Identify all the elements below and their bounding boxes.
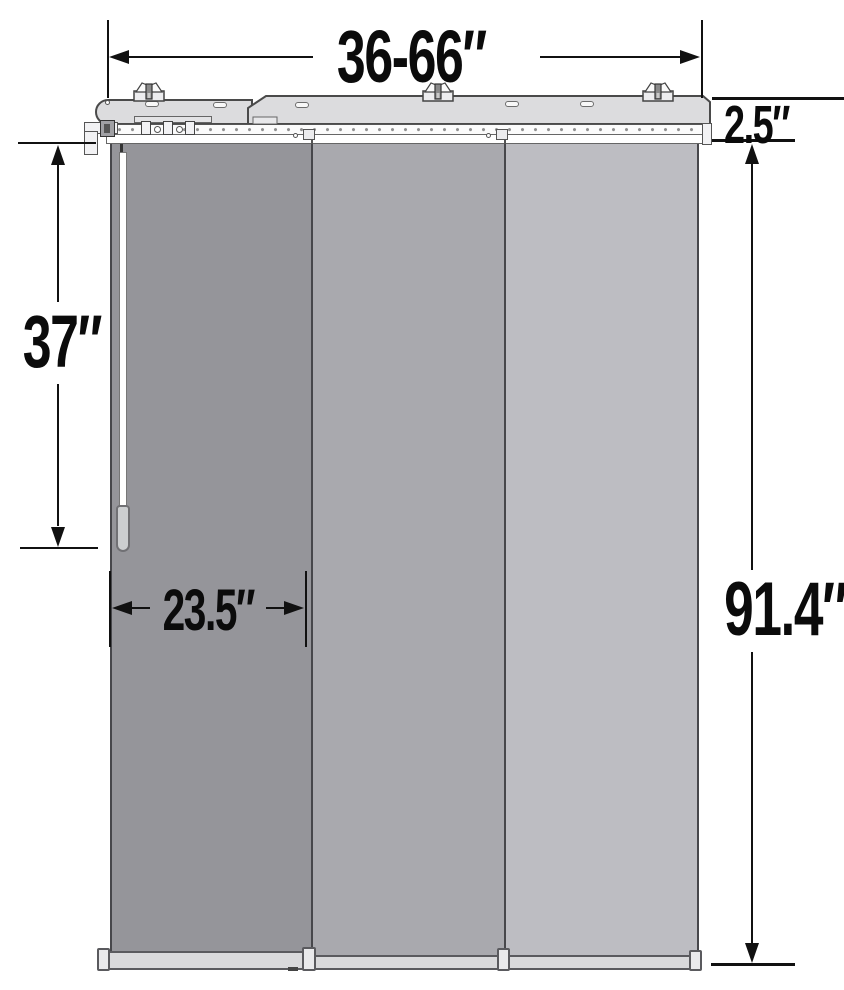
width-range-value: 36-66″ [337, 20, 486, 94]
extension-line-right [701, 20, 703, 98]
cord-anchor-detail [104, 124, 110, 133]
wand-length-value: 37″ [23, 305, 101, 379]
track-screw [293, 133, 298, 138]
panel-1 [110, 139, 313, 956]
arrowhead-down [745, 943, 759, 963]
wand-shaft [119, 152, 127, 507]
carrier-wheel [176, 126, 183, 133]
panel-2 [311, 140, 506, 958]
overall-height-label: 91.4″ [698, 572, 842, 648]
panel-3 [504, 140, 699, 958]
wand-tick-top [18, 142, 96, 144]
bottom-rail-stop [288, 967, 298, 971]
carrier-body [141, 121, 151, 135]
arrowhead-down [51, 527, 65, 547]
bottom-rail-panel-1 [99, 951, 313, 970]
headrail-slot [213, 102, 227, 108]
mounting-bracket-right [641, 79, 675, 103]
arrowhead-right [680, 50, 700, 64]
arrowhead-left [109, 50, 129, 64]
headrail-slot [580, 101, 594, 107]
arrowhead-right [284, 601, 304, 615]
panel-blind-dimension-diagram: 36-66″ 2.5″ 91.4″ 37″ 23.5″ [0, 0, 844, 990]
headrail-slot [505, 101, 519, 107]
track-lower-channel [106, 134, 712, 144]
panel-width-tick-right [305, 571, 307, 647]
wand-tick-bottom [20, 547, 98, 549]
bottom-rail-endcap [302, 947, 316, 971]
panel-hanger-clip [303, 129, 315, 140]
bottom-rail-panel-3 [504, 955, 700, 970]
panel-width-label: 23.5″ [128, 582, 288, 640]
overall-height-value: 91.4″ [724, 572, 844, 648]
dimension-line [266, 607, 286, 609]
headrail-slot [295, 102, 309, 108]
bottom-rail-endcap [689, 950, 702, 971]
mounting-bracket-left [132, 79, 166, 103]
carrier-body [185, 121, 195, 135]
panel-width-value: 23.5″ [162, 582, 253, 640]
bottom-rail-endcap [97, 948, 110, 971]
wand-handle [116, 505, 130, 552]
carrier-body [163, 121, 173, 135]
dimension-line [57, 384, 59, 526]
arrowhead-up [51, 145, 65, 165]
wand-length-label: 37″ [6, 305, 116, 379]
width-range-label: 36-66″ [286, 20, 536, 94]
dimension-line [540, 56, 680, 58]
panel-hanger-clip [496, 129, 508, 140]
arrowhead-up [745, 144, 759, 164]
track-screw [486, 133, 491, 138]
dimension-line [751, 164, 753, 570]
panel-width-tick-left [109, 571, 111, 647]
carrier-wheel [154, 126, 161, 133]
headrail-hole [105, 100, 110, 105]
bottom-rail-panel-2 [311, 955, 505, 970]
bottom-rail-endcap [497, 948, 510, 971]
height-tick-bottom [711, 963, 795, 966]
dimension-line [57, 164, 59, 302]
dimension-line [751, 652, 753, 944]
